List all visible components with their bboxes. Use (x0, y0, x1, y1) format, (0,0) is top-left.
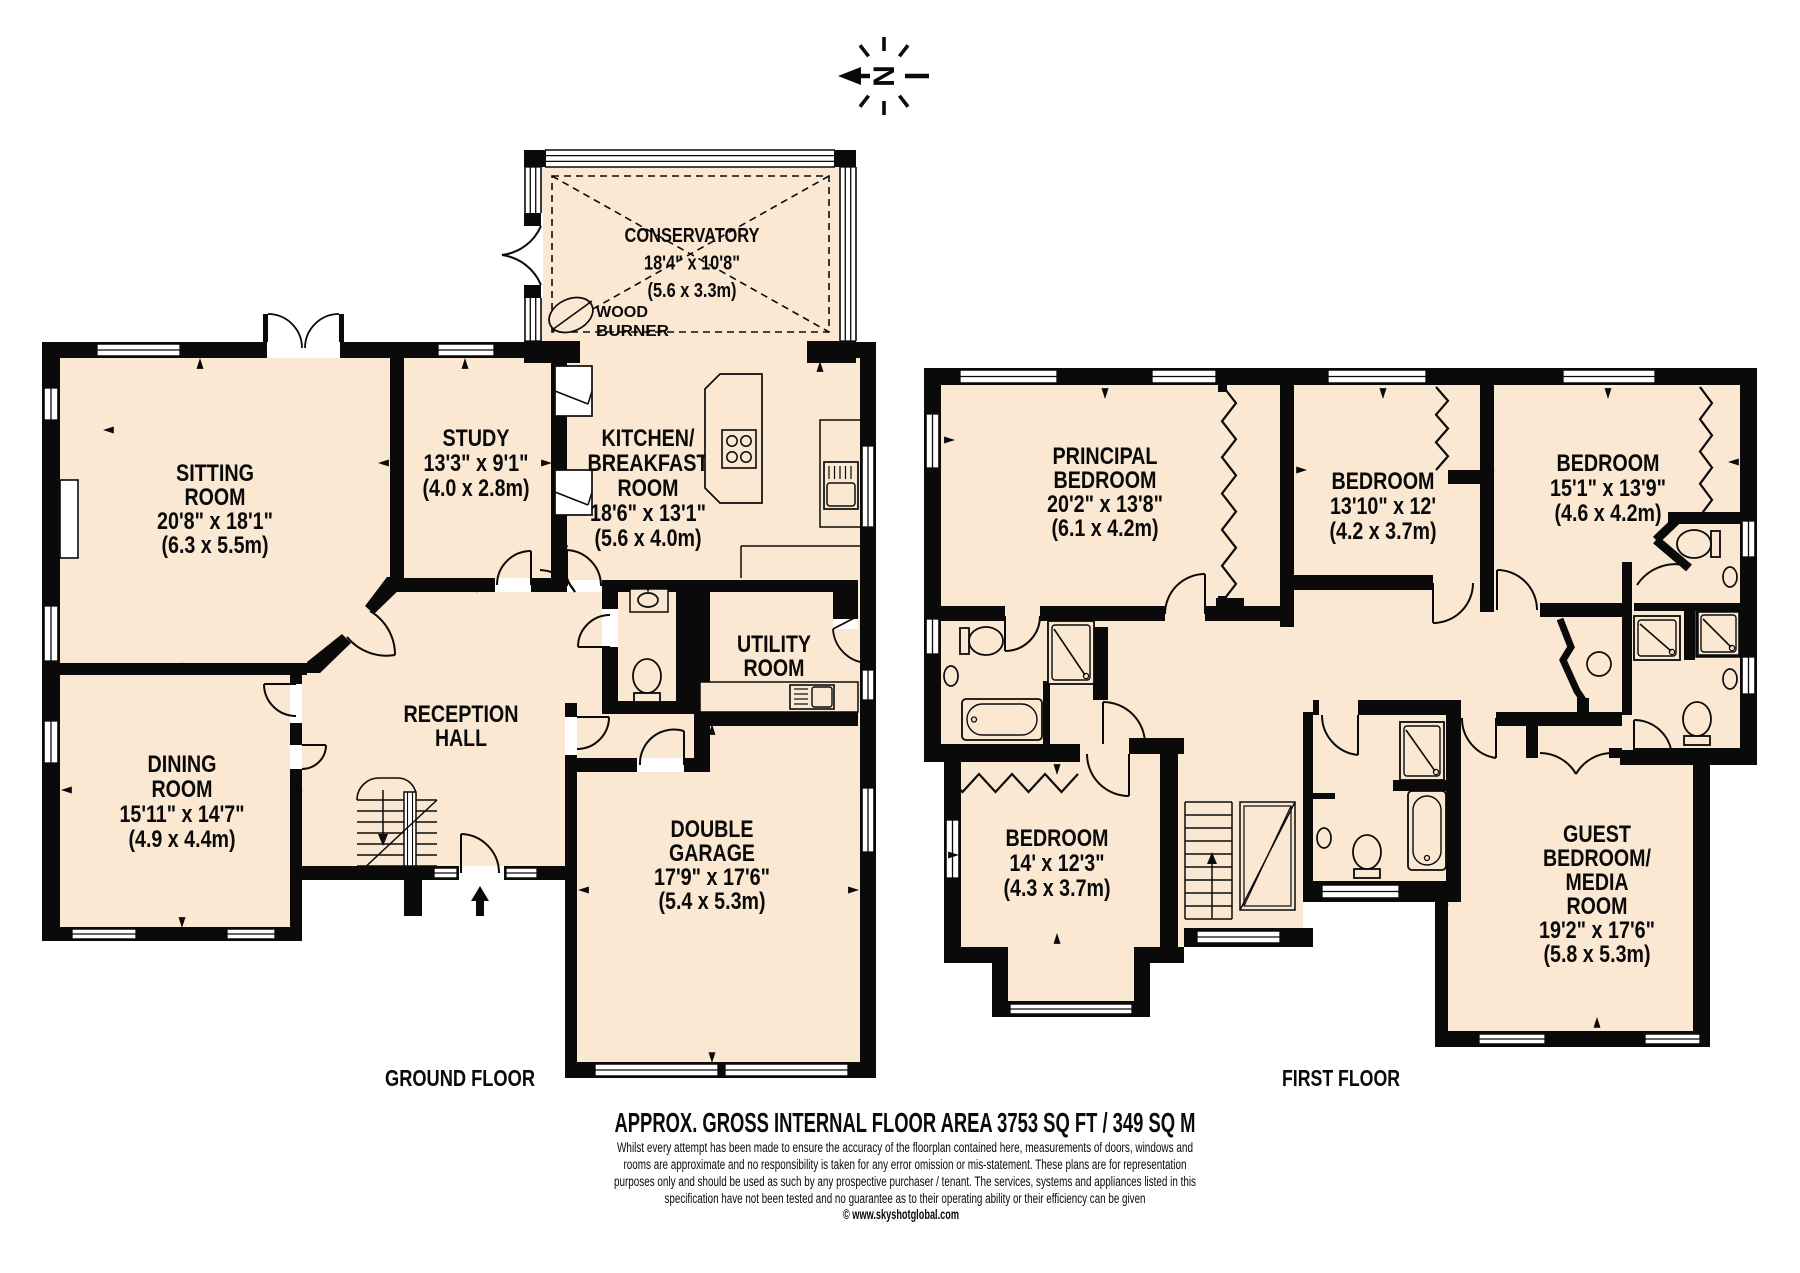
svg-text:ROOM: ROOM (744, 655, 805, 682)
svg-text:STUDY: STUDY (443, 425, 510, 452)
svg-text:(6.3 x 5.5m): (6.3 x 5.5m) (162, 532, 269, 559)
svg-text:(6.1 x 4.2m): (6.1 x 4.2m) (1052, 515, 1159, 542)
svg-text:KITCHEN/: KITCHEN/ (602, 425, 695, 452)
svg-text:(4.3 x 3.7m): (4.3 x 3.7m) (1004, 875, 1111, 902)
svg-text:13'10" x 12': 13'10" x 12' (1330, 493, 1436, 520)
svg-text:18'6" x 13'1": 18'6" x 13'1" (590, 500, 706, 527)
svg-text:15'11" x 14'7": 15'11" x 14'7" (120, 801, 245, 828)
svg-text:BREAKFAST: BREAKFAST (588, 450, 709, 477)
svg-text:GROUND FLOOR: GROUND FLOOR (385, 1065, 535, 1091)
svg-text:WOOD: WOOD (596, 304, 648, 321)
svg-text:(4.0 x 2.8m): (4.0 x 2.8m) (423, 475, 530, 502)
svg-text:BURNER: BURNER (596, 323, 669, 340)
svg-text:BEDROOM: BEDROOM (1054, 467, 1157, 494)
svg-text:18'4" x 10'8": 18'4" x 10'8" (644, 253, 740, 275)
svg-text:(5.8 x 5.3m): (5.8 x 5.3m) (1544, 941, 1651, 968)
svg-text:ROOM: ROOM (618, 475, 679, 502)
svg-text:20'2" x 13'8": 20'2" x 13'8" (1047, 491, 1163, 518)
svg-text:rooms are approximate and no r: rooms are approximate and no responsibil… (624, 1157, 1187, 1172)
svg-text:FIRST FLOOR: FIRST FLOOR (1282, 1065, 1400, 1091)
svg-text:(5.6 x 4.0m): (5.6 x 4.0m) (595, 525, 702, 552)
svg-text:APPROX. GROSS INTERNAL FLOOR A: APPROX. GROSS INTERNAL FLOOR AREA 3753 S… (615, 1107, 1196, 1138)
svg-text:CONSERVATORY: CONSERVATORY (625, 225, 761, 247)
svg-text:DOUBLE: DOUBLE (671, 816, 754, 843)
svg-text:SITTING: SITTING (176, 460, 254, 487)
svg-text:ROOM: ROOM (185, 484, 246, 511)
svg-text:HALL: HALL (435, 725, 487, 752)
svg-text:© www.skyshotglobal.com: © www.skyshotglobal.com (843, 1207, 959, 1222)
svg-text:17'9" x 17'6": 17'9" x 17'6" (654, 864, 770, 891)
svg-text:19'2" x 17'6": 19'2" x 17'6" (1539, 917, 1655, 944)
svg-text:(5.6 x 3.3m): (5.6 x 3.3m) (648, 280, 737, 302)
svg-text:specification have not been te: specification have not been tested and n… (665, 1191, 1146, 1206)
svg-text:20'8" x 18'1": 20'8" x 18'1" (157, 508, 273, 535)
svg-text:13'3" x 9'1": 13'3" x 9'1" (424, 450, 529, 477)
svg-text:Whilst every attempt has been: Whilst every attempt has been made to en… (617, 1140, 1193, 1155)
svg-text:GUEST: GUEST (1563, 821, 1631, 848)
svg-text:RECEPTION: RECEPTION (404, 701, 519, 728)
svg-text:GARAGE: GARAGE (669, 840, 755, 867)
svg-text:(4.2 x 3.7m): (4.2 x 3.7m) (1330, 518, 1437, 545)
svg-text:15'1" x 13'9": 15'1" x 13'9" (1550, 475, 1666, 502)
svg-text:BEDROOM: BEDROOM (1557, 450, 1660, 477)
svg-text:BEDROOM: BEDROOM (1006, 825, 1109, 852)
svg-text:ROOM: ROOM (1567, 893, 1628, 920)
svg-text:purposes only and should be u: purposes only and should be used as such… (614, 1174, 1196, 1189)
svg-text:DINING: DINING (148, 751, 217, 778)
svg-text:MEDIA: MEDIA (1566, 869, 1629, 896)
svg-text:(4.9 x 4.4m): (4.9 x 4.4m) (129, 826, 236, 853)
svg-text:ROOM: ROOM (152, 776, 213, 803)
svg-text:(5.4 x 5.3m): (5.4 x 5.3m) (659, 888, 766, 915)
svg-text:N: N (868, 65, 901, 87)
svg-text:14' x 12'3": 14' x 12'3" (1010, 850, 1105, 877)
svg-text:UTILITY: UTILITY (737, 631, 811, 658)
svg-text:PRINCIPAL: PRINCIPAL (1053, 443, 1158, 470)
svg-text:(4.6 x 4.2m): (4.6 x 4.2m) (1555, 500, 1662, 527)
svg-text:BEDROOM: BEDROOM (1332, 468, 1435, 495)
svg-text:BEDROOM/: BEDROOM/ (1543, 845, 1651, 872)
